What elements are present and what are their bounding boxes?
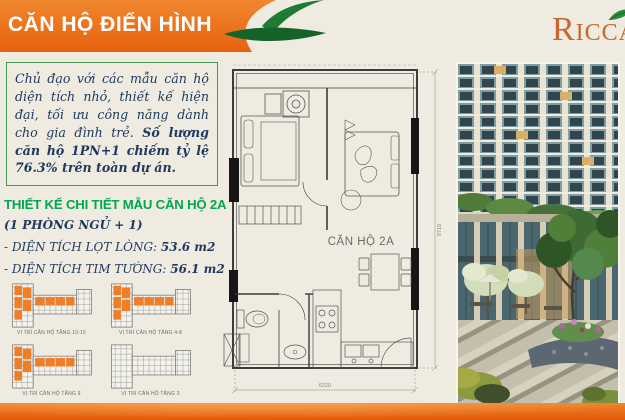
building-render-photo [456, 62, 620, 412]
wardrobe-small-room [239, 206, 301, 224]
area-label: - DIỆN TÍCH LỌT LÒNG: [4, 240, 161, 254]
mini-plan-floor-3: VỊ TRÍ CĂN HỘ TẦNG 3 [105, 343, 196, 402]
mini-plan-drawing [108, 343, 194, 390]
detail-heading: THIẾT KẾ CHI TIẾT MẪU CĂN HỘ 2A [4, 197, 220, 212]
header-banner: CĂN HỘ ĐIỂN HÌNH [0, 0, 340, 58]
unit-label: CĂN HỘ 2A [328, 235, 395, 248]
page-title: CĂN HỘ ĐIỂN HÌNH [8, 13, 212, 37]
bed-master-room [341, 120, 399, 210]
area-line-tim-tuong: - DIỆN TÍCH TIM TƯỜNG: 56.1 m2 [4, 262, 225, 276]
building-render-art [458, 64, 618, 410]
mini-plan-floors-4-8: VỊ TRÍ CĂN HỘ TẦNG 4-8 [105, 282, 196, 341]
dimension-width-label: 6220 [319, 383, 331, 389]
mini-plan-floor-9: VỊ TRÍ CĂN HỘ TẦNG 9 [6, 343, 97, 402]
dimension-right [419, 69, 438, 371]
brand-logo: Ricca [552, 10, 625, 54]
area-line-lot-long: - DIỆN TÍCH LỌT LÒNG: 53.6 m2 [4, 240, 215, 254]
mini-plan-drawing [9, 282, 95, 329]
bed-small-room [241, 116, 299, 186]
mini-plan-drawing [108, 282, 194, 329]
entry-door [381, 338, 411, 368]
mini-plan-caption: VỊ TRÍ CĂN HỘ TẦNG 10-15 [17, 330, 86, 336]
leaf-upper-icon [262, 0, 324, 29]
kitchen-counter [313, 290, 413, 368]
footer-accent-bar [0, 403, 625, 420]
dining-table [359, 254, 411, 290]
area-label: - DIỆN TÍCH TIM TƯỜNG: [4, 262, 170, 276]
slide: CĂN HỘ ĐIỂN HÌNH Ricca Chủ đạo với các m… [0, 0, 625, 420]
area-value: 53.6 m2 [161, 240, 215, 254]
mini-plan-drawing [9, 343, 95, 390]
mini-plan-grid: VỊ TRÍ CĂN HỘ TẦNG 10-15 VỊ TRÍ CĂN HỘ T… [6, 282, 196, 402]
detail-subheading: (1 PHÒNG NGỦ + 1) [4, 218, 143, 232]
mini-plan-caption: VỊ TRÍ CĂN HỘ TẦNG 3 [121, 391, 179, 397]
area-value: 56.1 m2 [170, 262, 224, 276]
intro-text-box: Chủ đạo với các mẫu căn hộ diện tích nhỏ… [6, 62, 218, 186]
dimension-bottom [232, 370, 418, 393]
dimension-height-label: 9710 [437, 224, 443, 236]
floor-plan-drawing: CĂN HỘ 2A [221, 58, 447, 400]
mini-plan-floors-10-15: VỊ TRÍ CĂN HỘ TẦNG 10-15 [6, 282, 97, 341]
tower-facade [458, 64, 618, 212]
mini-plan-caption: VỊ TRÍ CĂN HỘ TẦNG 4-8 [119, 330, 182, 336]
bathroom [235, 294, 313, 368]
brand-leaf-icon [608, 8, 625, 22]
structural-columns [229, 118, 419, 310]
washing-machine [265, 91, 309, 117]
mini-plan-caption: VỊ TRÍ CĂN HỘ TẦNG 9 [22, 391, 80, 397]
